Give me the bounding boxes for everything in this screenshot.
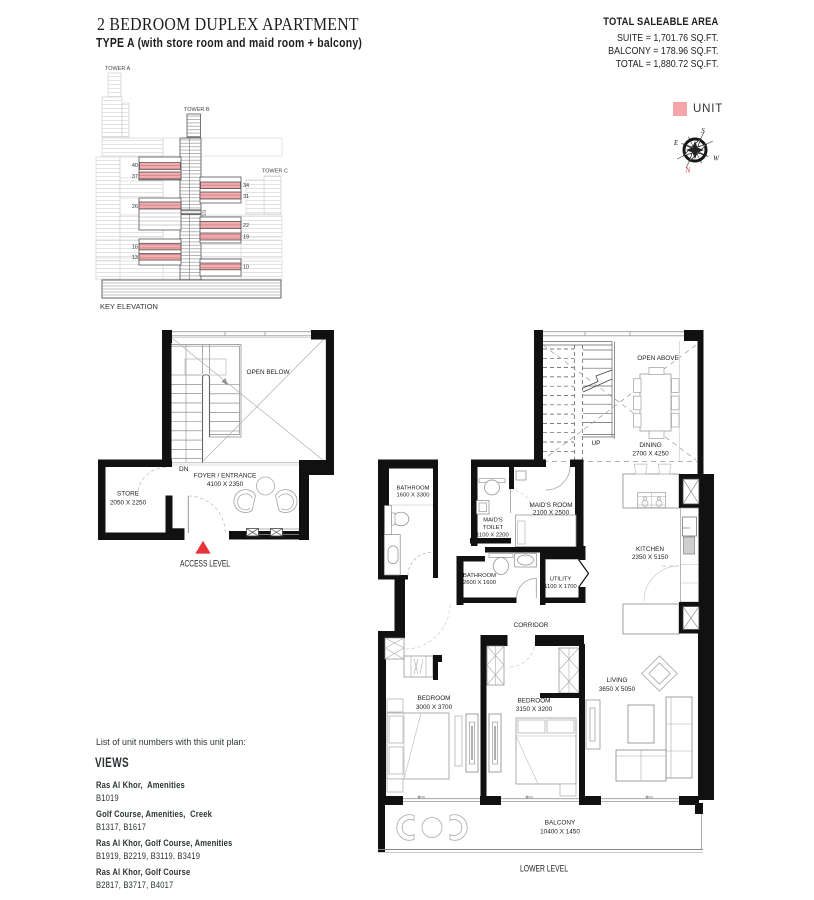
svg-text:E: E: [673, 139, 679, 147]
svg-text:26: 26: [132, 204, 138, 210]
svg-text:2600 X 1600: 2600 X 1600: [463, 580, 496, 586]
svg-text:BEDROOM: BEDROOM: [517, 698, 550, 705]
svg-text:TOILET: TOILET: [483, 525, 504, 531]
svg-text:31: 31: [243, 194, 249, 200]
svg-text:ACCESS LEVEL: ACCESS LEVEL: [180, 559, 230, 569]
svg-text:TOWER B: TOWER B: [184, 107, 210, 113]
svg-text:40: 40: [132, 163, 138, 169]
svg-text:22: 22: [243, 223, 249, 229]
svg-text:BEDROOM: BEDROOM: [417, 695, 450, 702]
svg-text:CORRIDOR: CORRIDOR: [514, 622, 549, 629]
svg-text:DN: DN: [179, 466, 189, 473]
svg-text:BALCONY: BALCONY: [545, 820, 576, 827]
svg-text:BATHROOM: BATHROOM: [463, 573, 496, 579]
svg-text:2350 X 5150: 2350 X 5150: [632, 554, 669, 561]
svg-text:TOWER A: TOWER A: [105, 66, 131, 72]
svg-text:FOYER / ENTRANCE: FOYER / ENTRANCE: [194, 473, 257, 480]
svg-text:LOWER LEVEL: LOWER LEVEL: [520, 864, 568, 874]
svg-text:KITCHEN: KITCHEN: [636, 546, 664, 553]
svg-text:10400 X 1450: 10400 X 1450: [540, 829, 580, 836]
svg-text:MAID'S ROOM: MAID'S ROOM: [529, 502, 572, 509]
svg-text:37: 37: [132, 174, 138, 180]
svg-text:3650 X 5050: 3650 X 5050: [599, 686, 636, 693]
svg-text:UTILITY: UTILITY: [550, 577, 572, 583]
svg-text:LIVING: LIVING: [607, 677, 628, 684]
svg-text:TOWER C: TOWER C: [262, 169, 288, 175]
svg-text:1100 X 1700: 1100 X 1700: [544, 584, 576, 590]
svg-text:N: N: [685, 167, 691, 175]
svg-text:DINING: DINING: [639, 442, 661, 449]
svg-text:1100 X 2200: 1100 X 2200: [476, 533, 508, 539]
svg-text:BATHROOM: BATHROOM: [396, 486, 429, 492]
svg-text:10: 10: [243, 265, 249, 271]
svg-text:3150 X 3200: 3150 X 3200: [516, 706, 553, 713]
svg-text:2700 X 4250: 2700 X 4250: [632, 451, 669, 458]
svg-text:16: 16: [132, 245, 138, 251]
svg-text:2050 X 2250: 2050 X 2250: [110, 500, 147, 507]
svg-text:OPEN BELOW: OPEN BELOW: [247, 369, 291, 376]
svg-text:3000 X 3700: 3000 X 3700: [416, 704, 453, 711]
svg-text:W: W: [713, 155, 720, 163]
svg-text:UP: UP: [592, 440, 601, 447]
svg-text:1600 X 3300: 1600 X 3300: [397, 493, 430, 499]
svg-text:24: 24: [202, 213, 206, 217]
svg-text:MAID'S: MAID'S: [483, 518, 503, 524]
svg-text:S: S: [701, 127, 705, 135]
svg-text:34: 34: [243, 183, 249, 189]
svg-text:4100 X 2350: 4100 X 2350: [207, 481, 244, 488]
svg-text:19: 19: [243, 235, 249, 241]
svg-text:STORE: STORE: [117, 491, 139, 498]
svg-text:KEY ELEVATION: KEY ELEVATION: [100, 302, 158, 311]
svg-text:OPEN ABOVE: OPEN ABOVE: [637, 355, 679, 362]
svg-text:13: 13: [132, 255, 138, 261]
